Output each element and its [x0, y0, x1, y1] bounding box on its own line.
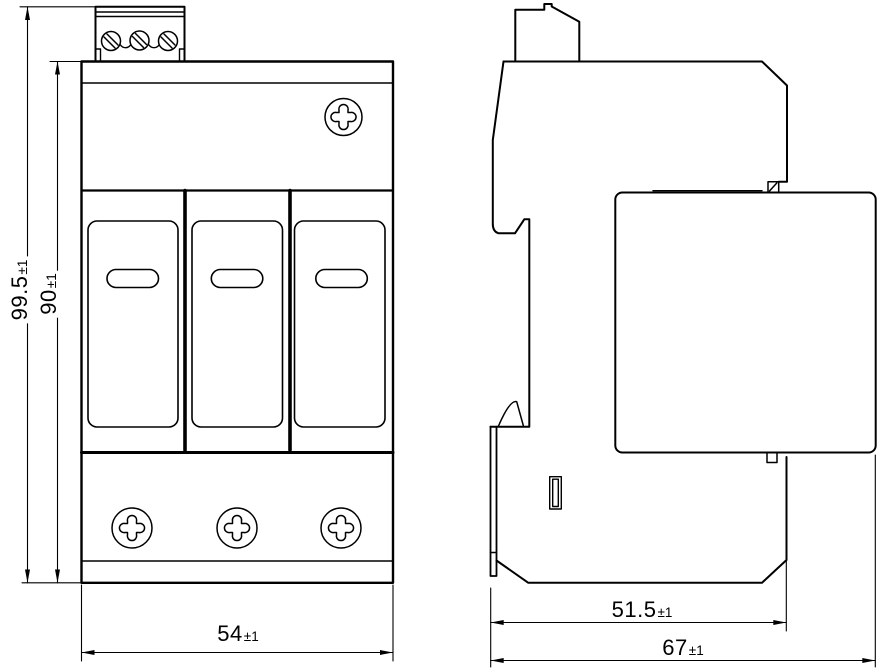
- module-2-face: [192, 221, 283, 427]
- side-terminal-block: [515, 4, 579, 62]
- dimension-linework: [20, 7, 875, 667]
- module-2: [192, 221, 283, 427]
- module-3: [295, 221, 386, 427]
- module-1-window: [107, 270, 159, 288]
- dimension-tolerance: ±1: [45, 273, 59, 288]
- dimension-value: 51.5: [612, 599, 657, 621]
- bottom-screw-3: [321, 508, 361, 548]
- module-2-window: [211, 270, 262, 288]
- side-slot-detail: [550, 477, 562, 509]
- clamp-arc-1: [121, 45, 131, 48]
- drawing-linework: [0, 0, 885, 669]
- side-body-top: [504, 62, 788, 182]
- side-module-outline: [615, 193, 875, 453]
- dimension-arrows: [25, 7, 875, 663]
- front-terminal-block: [96, 7, 185, 62]
- side-body-bottom: [497, 457, 787, 583]
- dimension-tolerance: ±1: [16, 260, 30, 275]
- dimension-label-body-height: 90 ±1: [38, 270, 60, 317]
- dimension-label-overall-depth: 67 ±1: [659, 637, 706, 659]
- module-latch-bottom: [767, 453, 777, 463]
- front-view: [82, 7, 394, 583]
- side-body-left: [491, 62, 530, 427]
- front-body-outline: [82, 62, 394, 583]
- bottom-screw-1: [112, 508, 152, 548]
- din-clip-slider: [491, 427, 497, 576]
- dimension-value: 54: [217, 623, 242, 645]
- module-latch-top: [768, 182, 779, 193]
- bottom-screw-2: [217, 508, 257, 548]
- dimension-value: 90: [38, 289, 60, 314]
- module-3-face: [295, 221, 386, 427]
- terminal-screw-2: [130, 31, 149, 50]
- dimension-label-overall-height: 99.5 ±1: [9, 257, 31, 324]
- mounting-screw-top: [325, 99, 362, 136]
- terminal-screw-3: [159, 32, 178, 51]
- bottom-band: [82, 508, 394, 561]
- module-section: [82, 191, 394, 453]
- dimension-tolerance: ±1: [657, 606, 672, 620]
- clamp-arc-2: [149, 45, 159, 48]
- dimension-value: 99.5: [9, 276, 31, 321]
- side-view: [491, 4, 876, 583]
- terminal-screw-1: [102, 32, 121, 51]
- module-1: [88, 221, 178, 427]
- din-clip-pawl: [499, 402, 524, 426]
- dimension-label-width: 54 ±1: [214, 623, 261, 645]
- dimension-drawing: 99.5 ±1 90 ±1 54 ±1 51.5 ±1 67 ±1: [0, 0, 885, 669]
- terminal-block-outline: [96, 7, 185, 62]
- module-1-face: [88, 221, 178, 427]
- dimension-tolerance: ±1: [244, 630, 259, 644]
- dimension-tolerance: ±1: [689, 644, 704, 658]
- module-3-window: [316, 270, 368, 288]
- dimension-label-body-depth: 51.5 ±1: [609, 599, 676, 621]
- din-rail-clip: [491, 402, 524, 576]
- dimension-value: 67: [662, 637, 687, 659]
